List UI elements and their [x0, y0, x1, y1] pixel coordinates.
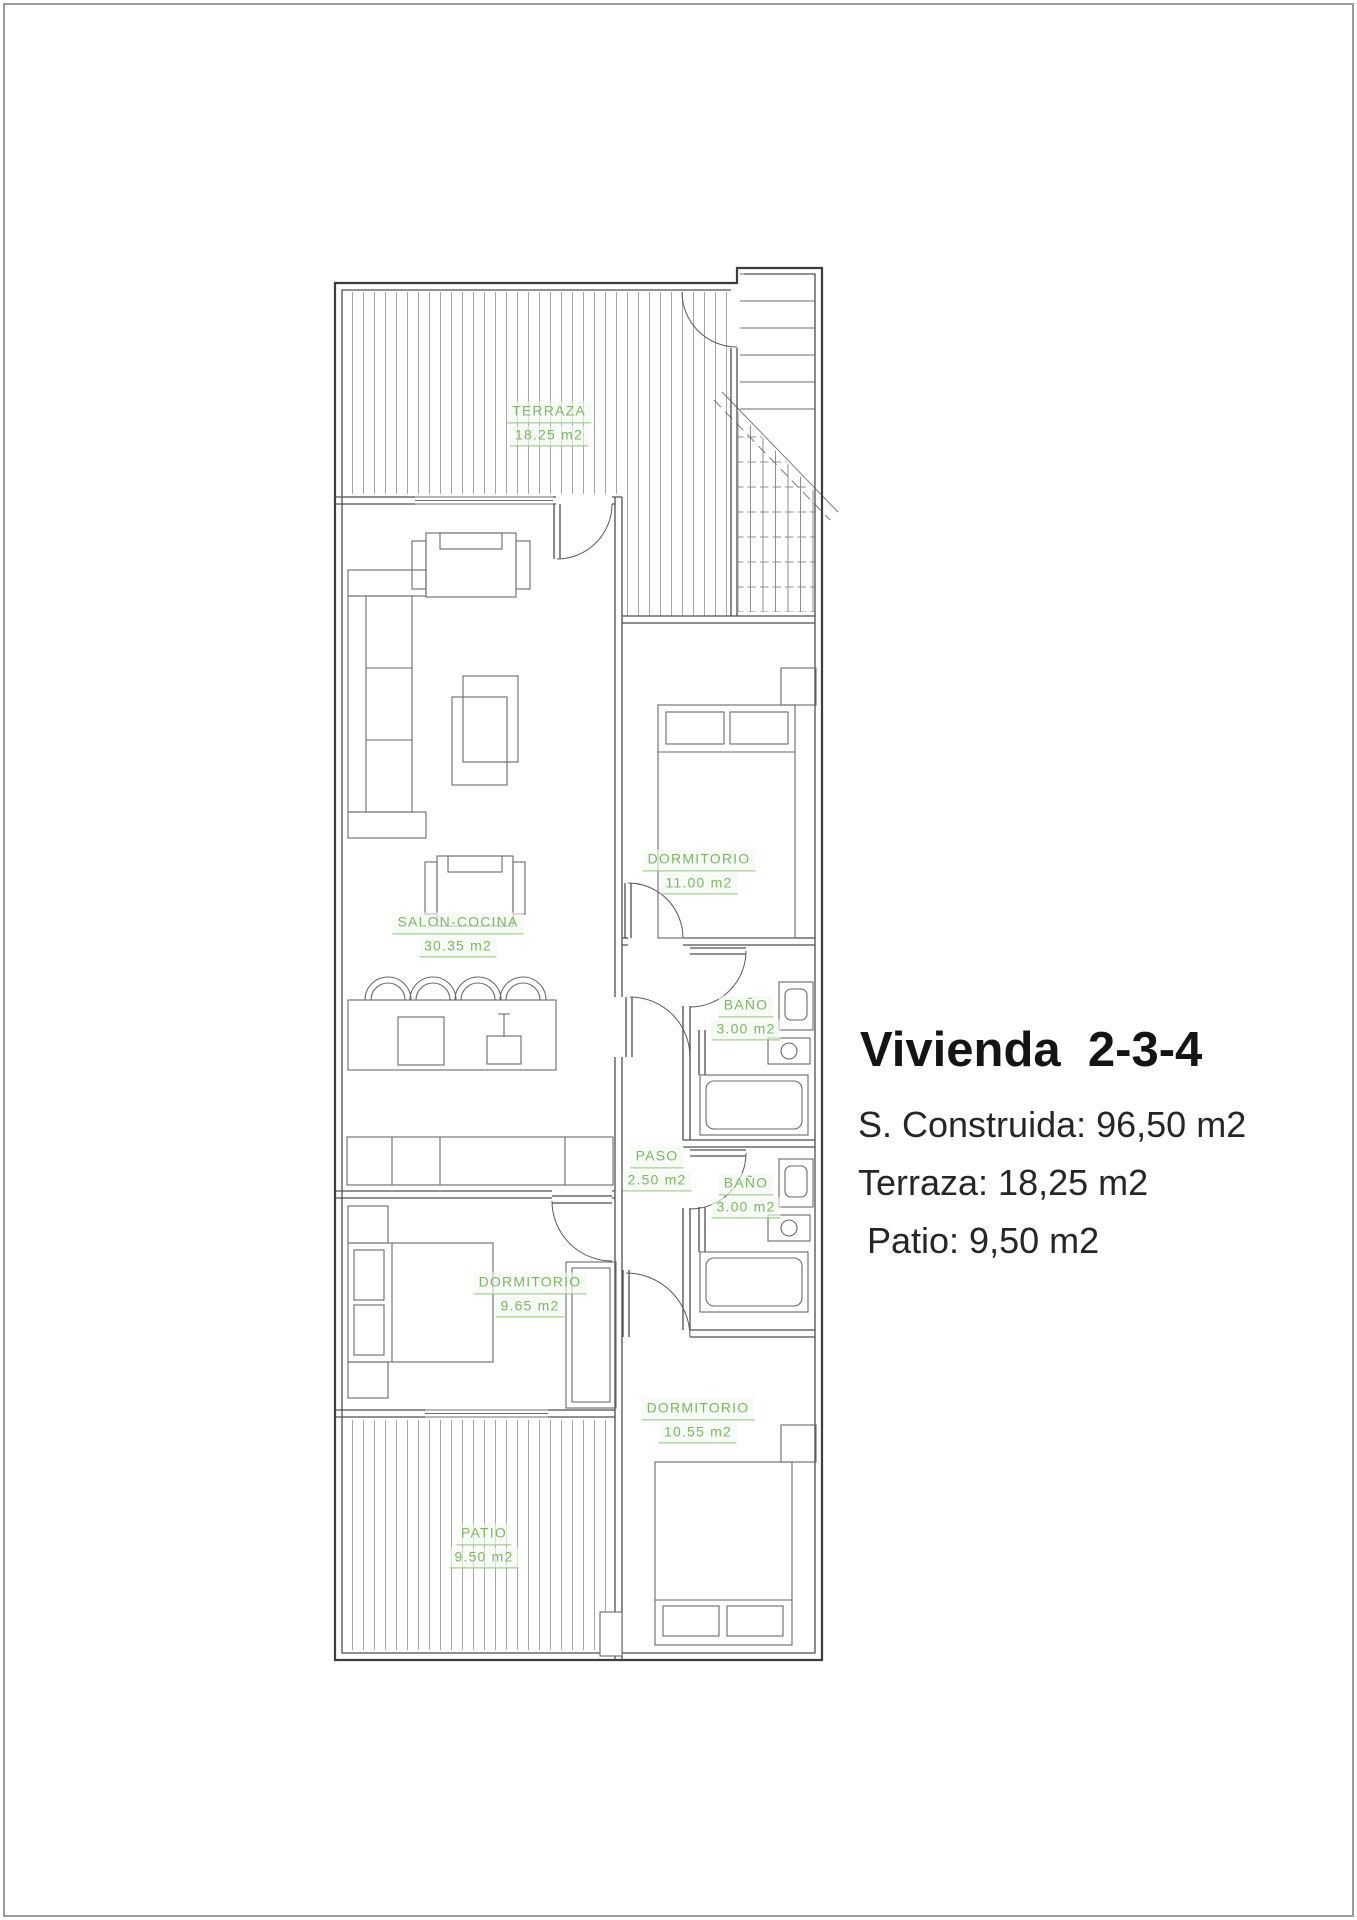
floor-plan-page: TERRAZA 18.25 m2 SALON-COCINA 30.35 m2 D… [0, 0, 1357, 1920]
built-area-line: S. Construida: 96,50 m2 [858, 1102, 1246, 1149]
room-label-salon-cocina: SALON-COCINA 30.35 m2 [393, 911, 524, 958]
room-label-dormitorio-1: DORMITORIO 11.00 m2 [643, 848, 756, 895]
room-area: 2.50 m2 [623, 1170, 692, 1192]
floor-plan-drawing [0, 0, 1357, 1920]
room-label-paso: PASO 2.50 m2 [623, 1145, 692, 1192]
info-panel: Vivienda 2-3-4 S. Construida: 96,50 m2 T… [858, 1022, 1246, 1275]
room-name: TERRAZA [507, 401, 591, 423]
patio-area-line: Patio: 9,50 m2 [867, 1218, 1246, 1265]
room-label-bano-2: BAÑO 3.00 m2 [712, 1172, 781, 1219]
room-name: DORMITORIO [643, 849, 756, 871]
room-area: 9.65 m2 [496, 1296, 565, 1318]
dwelling-title: Vivienda 2-3-4 [860, 1022, 1246, 1078]
room-name: DORMITORIO [474, 1272, 587, 1294]
room-label-bano-1: BAÑO 3.00 m2 [712, 994, 781, 1041]
terrace-area-line: Terraza: 18,25 m2 [858, 1160, 1246, 1207]
room-label-terraza: TERRAZA 18.25 m2 [507, 400, 591, 447]
room-area: 9.50 m2 [450, 1547, 519, 1569]
room-area: 10.55 m2 [659, 1422, 737, 1444]
room-name: SALON-COCINA [393, 912, 524, 934]
room-area: 3.00 m2 [712, 1019, 781, 1041]
room-area: 18.25 m2 [510, 425, 588, 447]
room-area: 30.35 m2 [419, 936, 497, 958]
room-name: PATIO [456, 1523, 512, 1545]
room-label-patio: PATIO 9.50 m2 [450, 1522, 519, 1569]
room-name: BAÑO [719, 1173, 773, 1195]
room-name: BAÑO [719, 995, 773, 1017]
room-area: 11.00 m2 [661, 873, 738, 895]
room-label-dormitorio-3: DORMITORIO 10.55 m2 [642, 1397, 755, 1444]
room-label-dormitorio-2: DORMITORIO 9.65 m2 [474, 1271, 587, 1318]
room-name: DORMITORIO [642, 1398, 755, 1420]
room-area: 3.00 m2 [712, 1197, 781, 1219]
room-name: PASO [631, 1146, 684, 1168]
